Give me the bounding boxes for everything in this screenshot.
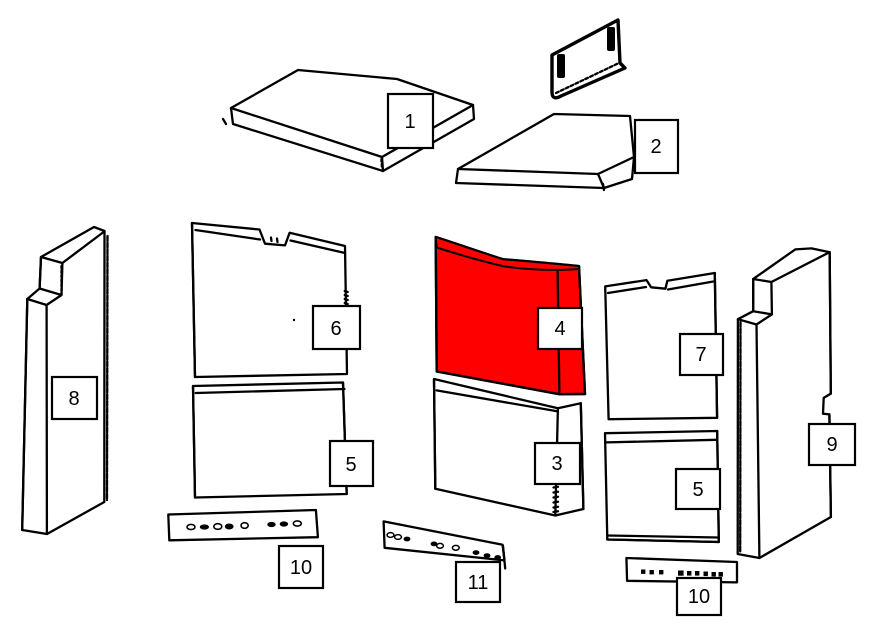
svg-text:5: 5 bbox=[345, 454, 356, 476]
svg-text:8: 8 bbox=[68, 388, 79, 410]
svg-text:9: 9 bbox=[826, 434, 837, 456]
svg-text:7: 7 bbox=[695, 344, 706, 366]
svg-text:6: 6 bbox=[330, 318, 341, 340]
svg-text:3: 3 bbox=[551, 453, 562, 475]
svg-text:11: 11 bbox=[468, 572, 489, 594]
svg-text:10: 10 bbox=[290, 557, 312, 579]
svg-text:5: 5 bbox=[692, 479, 703, 501]
svg-text:2: 2 bbox=[650, 136, 661, 158]
svg-text:4: 4 bbox=[554, 318, 565, 340]
svg-text:1: 1 bbox=[404, 111, 415, 133]
svg-text:10: 10 bbox=[688, 586, 710, 608]
